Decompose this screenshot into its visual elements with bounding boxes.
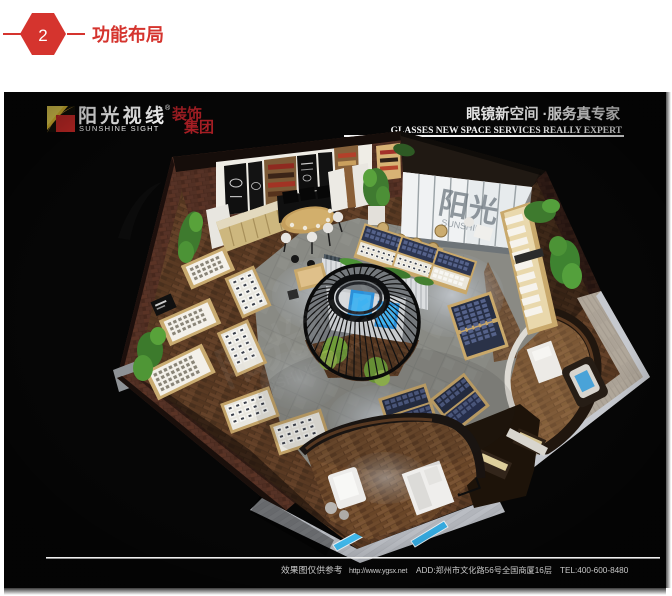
- svg-text:功能布局: 功能布局: [92, 24, 164, 45]
- svg-text:效果图仅供参考: 效果图仅供参考: [281, 564, 343, 575]
- svg-text:http://www.ygsx.net: http://www.ygsx.net: [349, 566, 407, 575]
- svg-text:TEL:400-600-8480: TEL:400-600-8480: [560, 566, 629, 575]
- svg-text:ADD:郑州市文化路56号全国商厦16层: ADD:郑州市文化路56号全国商厦16层: [416, 565, 552, 575]
- svg-text:2: 2: [38, 26, 47, 45]
